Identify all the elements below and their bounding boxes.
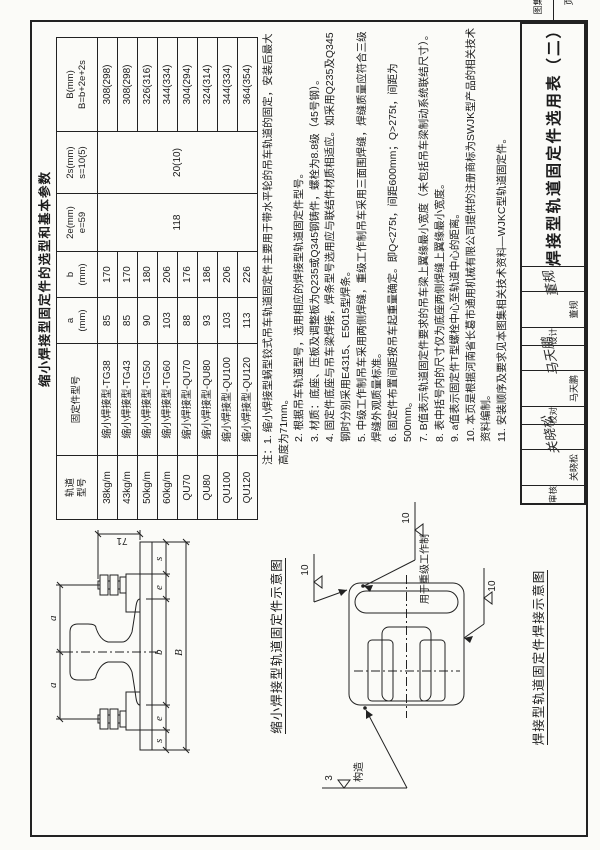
dim-label-a: a	[47, 615, 59, 621]
col-header-part: 固定件型号	[57, 344, 98, 456]
cell-b: 180	[138, 252, 158, 298]
cell-B: 308(298)	[98, 38, 118, 132]
cell-B: 308(298)	[118, 38, 138, 132]
plan-caption: 焊接型轨道固定件焊接示意图	[528, 560, 547, 755]
col-header-b: b (mm)	[57, 252, 98, 298]
cross-section-caption-text: 缩小焊接型轨道固定件示意图	[270, 558, 286, 734]
note-line: 10. 本页是根据河南省长葛市通用机械有限公司提供的注册商标为SWJK型产品的相…	[464, 25, 495, 442]
nut	[100, 709, 108, 729]
cell-B: 326(316)	[138, 38, 158, 132]
cell-part: 缩小焊接型-QU100	[218, 344, 238, 456]
cell-rail: QU120	[238, 456, 258, 520]
dim-label-e: e	[153, 716, 165, 721]
cell-rail: 50kg/m	[138, 456, 158, 520]
cell-B: 364(354)	[238, 38, 258, 132]
cell-part: 缩小焊接型-QU70	[178, 344, 198, 456]
dim-label-71: 71	[116, 535, 128, 546]
title-block-right: 图集号 05G525 页 21	[522, 0, 584, 20]
cell-rail: 43kg/m	[118, 456, 138, 520]
note-line: 6. 固定件布置间距按吊车起重量确定。即Q<275t，间距600mm；Q>275…	[386, 25, 417, 442]
weld-size-label: 10	[401, 512, 412, 524]
table-row: 43kg/m 缩小焊接型-TG43 85 170 308(298)	[118, 38, 138, 520]
col-header-2s-l2: s=10(5)	[77, 132, 89, 193]
washer	[120, 711, 126, 727]
note-line: 7. B值表示轨道固定件要求的吊车梁上翼缘最小宽度（未包括吊车梁制动系统联结尺寸…	[417, 25, 433, 442]
cross-section-drawing: a a 71 s e b e s	[34, 520, 262, 772]
note-line: 3. 材质：底座、压板及调整板为Q235或Q345钢铸件，螺栓为8.8级（45号…	[308, 25, 324, 442]
cell-B: 304(294)	[178, 38, 198, 132]
atlas-page-scan: 缩小焊接型固定件的选型和基本参数 轨道 型号 固定件型号 a (mm) b	[0, 0, 600, 850]
table-title: 缩小焊接型固定件的选型和基本参数	[36, 38, 56, 520]
header-row: 轨道 型号 固定件型号 a (mm) b (mm) 2e(mm) e=59 2s…	[57, 38, 98, 520]
title-block: 审核 关晓松 关晓松 校对 马天鹏 马天鹏 设计 董规 董规 焊接型轨道固定件选…	[520, 22, 586, 505]
cell-a: 103	[218, 298, 238, 344]
plan-caption-text: 焊接型轨道固定件焊接示意图	[532, 570, 548, 746]
col-header-B-l2: B=b+2e+2s	[77, 38, 89, 131]
weld-size-label: 10	[300, 564, 311, 576]
dim-label-s: s	[153, 557, 165, 561]
nut	[100, 575, 108, 595]
dim-label-B: B	[173, 649, 185, 656]
col-header-2s-l1: 2s(mm)	[65, 132, 77, 193]
cell-a: 85	[98, 298, 118, 344]
note-line: 2. 根据吊车轨道型号，选用相应的焊接型轨道固定件型号。	[292, 25, 308, 442]
table-row: 60kg/m 缩小焊接型-TG60 103 206 344(334)	[158, 38, 178, 520]
cell-B: 344(334)	[218, 38, 238, 132]
cell-part: 缩小焊接型-QU120	[238, 344, 258, 456]
cell-rail: 60kg/m	[158, 456, 178, 520]
signature: 董规	[538, 269, 562, 298]
role-signature-reviewer: 关晓松	[522, 424, 584, 449]
cell-rail: QU70	[178, 456, 198, 520]
page-number-label: 页	[554, 0, 585, 20]
note-line: 9. a值表示固定件T型螺栓中心至轨道中心的距离。	[448, 25, 464, 442]
cell-b: 176	[178, 252, 198, 298]
note-line: 11. 安装顺序及要求见本图集相关技术资料—WJKC型轨道固定件。	[495, 25, 511, 442]
col-header-b-l2: (mm)	[77, 252, 89, 297]
cell-a: 113	[238, 298, 258, 344]
cell-part: 缩小焊接型-TG43	[118, 344, 138, 456]
col-header-2e: 2e(mm) e=59	[57, 194, 98, 252]
beam-flange	[140, 542, 152, 750]
role-label-reviewer: 审核	[522, 485, 584, 503]
col-header-2e-l2: e=59	[77, 194, 89, 251]
table-row: 38kg/m 缩小焊接型-TG38 85 170 118 20(10) 308(…	[98, 38, 118, 520]
cell-part: 缩小焊接型-TG50	[138, 344, 158, 456]
page-number-row: 页 21	[554, 0, 585, 20]
col-header-rail-l1: 轨道	[65, 456, 77, 519]
cell-b: 206	[158, 252, 178, 298]
col-header-rail: 轨道 型号	[57, 456, 98, 520]
cell-b: 186	[198, 252, 218, 298]
cross-section-caption: 缩小焊接型轨道固定件示意图	[266, 520, 285, 772]
cell-2s-merged: 20(10)	[98, 132, 258, 194]
selection-table-block: 缩小焊接型固定件的选型和基本参数 轨道 型号 固定件型号 a (mm) b	[36, 38, 258, 520]
sheet-title: 焊接型轨道固定件选用表（二）	[522, 20, 584, 266]
table-row: QU100 缩小焊接型-QU100 103 206 344(334)	[218, 38, 238, 520]
table-row: QU120 缩小焊接型-QU120 113 226 364(354)	[238, 38, 258, 520]
cell-rail: 38kg/m	[98, 456, 118, 520]
plan-drawing-box: 10 10 用于重级工作制 10 3 构造	[292, 490, 502, 850]
cell-b: 206	[218, 252, 238, 298]
weld-note-label: 用于重级工作制	[418, 534, 431, 604]
table-row: 50kg/m 缩小焊接型-TG50 90 180 326(316)	[138, 38, 158, 520]
note-line: 4. 固定件底座与吊车梁焊接，焊条型号选用应与联结件材质相适应。如采用Q235及…	[323, 25, 354, 442]
dim-label-s: s	[153, 739, 165, 743]
cell-a: 93	[198, 298, 218, 344]
note-line: 5. 中级工作制吊车采用两侧焊缝，重级工作制吊车采用三面围焊缝，焊缝质量应符合三…	[355, 25, 386, 442]
role-signature-checker: 马天鹏	[522, 345, 584, 370]
atlas-number-label: 图集号	[522, 0, 553, 20]
col-header-rail-l2: 型号	[77, 456, 89, 519]
col-header-a-l2: (mm)	[77, 298, 89, 343]
role-signature-designer: 董规	[522, 266, 584, 291]
col-header-B-l1: B(mm)	[65, 38, 77, 131]
table-row: QU80 缩小焊接型-QU80 93 186 324(314)	[198, 38, 218, 520]
weld-size-label: 3	[324, 775, 335, 781]
atlas-number-row: 图集号 05G525	[522, 0, 554, 20]
nut	[110, 709, 118, 729]
col-header-B: B(mm) B=b+2e+2s	[57, 38, 98, 132]
cell-b: 170	[98, 252, 118, 298]
table-row: QU70 缩小焊接型-QU70 88 176 304(294)	[178, 38, 198, 520]
note-line: 8. 表中括号内的尺寸仅为底座两侧焊缝上翼缘最小宽度。	[433, 25, 449, 442]
weld-note-label: 构造	[352, 762, 365, 782]
cell-part: 缩小焊接型-QU80	[198, 344, 218, 456]
col-header-b-l1: b	[65, 252, 77, 297]
cell-part: 缩小焊接型-TG38	[98, 344, 118, 456]
cell-part: 缩小焊接型-TG60	[158, 344, 178, 456]
nut	[110, 575, 118, 595]
landscape-sheet: 缩小焊接型固定件的选型和基本参数 轨道 型号 固定件型号 a (mm) b	[0, 0, 600, 850]
col-header-2s: 2s(mm) s=10(5)	[57, 132, 98, 194]
dim-label-a: a	[47, 682, 59, 688]
cell-rail: QU100	[218, 456, 238, 520]
col-header-2e-l1: 2e(mm)	[65, 194, 77, 251]
cell-a: 90	[138, 298, 158, 344]
notes-block: 注：1. 缩小焊接型蜗型铰式吊车轨道固定件主要用于带水平轮的吊车轨道的固定，安装…	[261, 25, 511, 465]
washer	[120, 577, 126, 593]
cell-a: 88	[178, 298, 198, 344]
cell-2e-merged: 118	[98, 194, 258, 252]
clamp-base	[126, 692, 140, 730]
plan-weld-drawing: 10 10 用于重级工作制 10 3 构造	[292, 490, 502, 850]
cell-a: 85	[118, 298, 138, 344]
cell-rail: QU80	[198, 456, 218, 520]
dim-label-b: b	[153, 649, 165, 655]
cell-a: 103	[158, 298, 178, 344]
clamp-base	[126, 574, 140, 612]
col-header-a-l1: a	[65, 298, 77, 343]
title-block-roles: 审核 关晓松 关晓松 校对 马天鹏 马天鹏 设计 董规 董规	[522, 266, 584, 503]
dim-label-e: e	[153, 585, 165, 590]
selection-table: 轨道 型号 固定件型号 a (mm) b (mm) 2e(mm) e=59 2s…	[56, 37, 258, 520]
cell-b: 226	[238, 252, 258, 298]
cell-b: 170	[118, 252, 138, 298]
weld-size-label: 10	[487, 580, 498, 592]
col-header-a: a (mm)	[57, 298, 98, 344]
note-line: 注：1. 缩小焊接型蜗型铰式吊车轨道固定件主要用于带水平轮的吊车轨道的固定，安装…	[261, 25, 292, 465]
cell-B: 344(334)	[158, 38, 178, 132]
cell-B: 324(314)	[198, 38, 218, 132]
